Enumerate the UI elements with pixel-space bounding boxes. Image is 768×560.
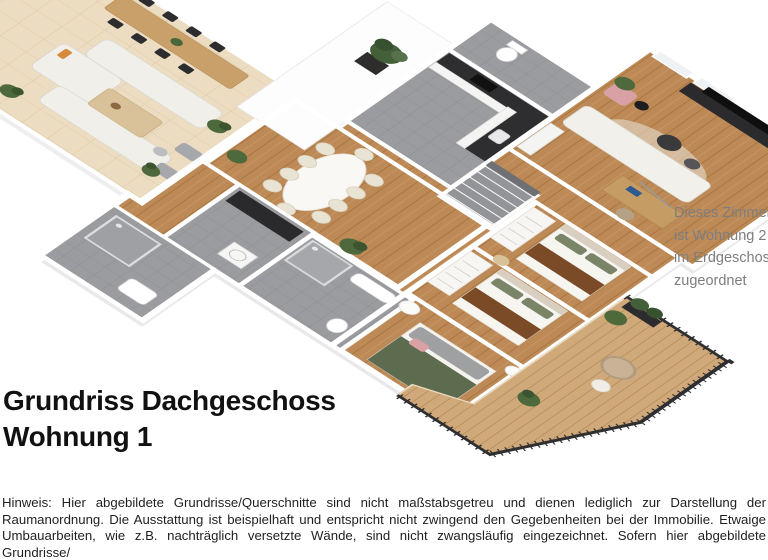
annotation-line: zugeordnet (674, 270, 768, 293)
annotation-line: im Erdgeschoss (674, 247, 768, 270)
disclaimer-text: Hinweis: Hier abgebildete Grundrisse/Que… (2, 495, 766, 560)
wohnung2-annotation: Dieses Zimmer ist Wohnung 2 im Erdgescho… (674, 202, 768, 292)
page-title: Grundriss Dachgeschoss Wohnung 1 (3, 383, 336, 455)
title-line-2: Wohnung 1 (3, 419, 336, 455)
annotation-line: Dieses Zimmer (674, 202, 768, 225)
floorplan-page: Dieses Zimmer ist Wohnung 2 im Erdgescho… (0, 0, 768, 560)
annotation-line: ist Wohnung 2 (674, 225, 768, 248)
title-line-1: Grundriss Dachgeschoss (3, 383, 336, 419)
